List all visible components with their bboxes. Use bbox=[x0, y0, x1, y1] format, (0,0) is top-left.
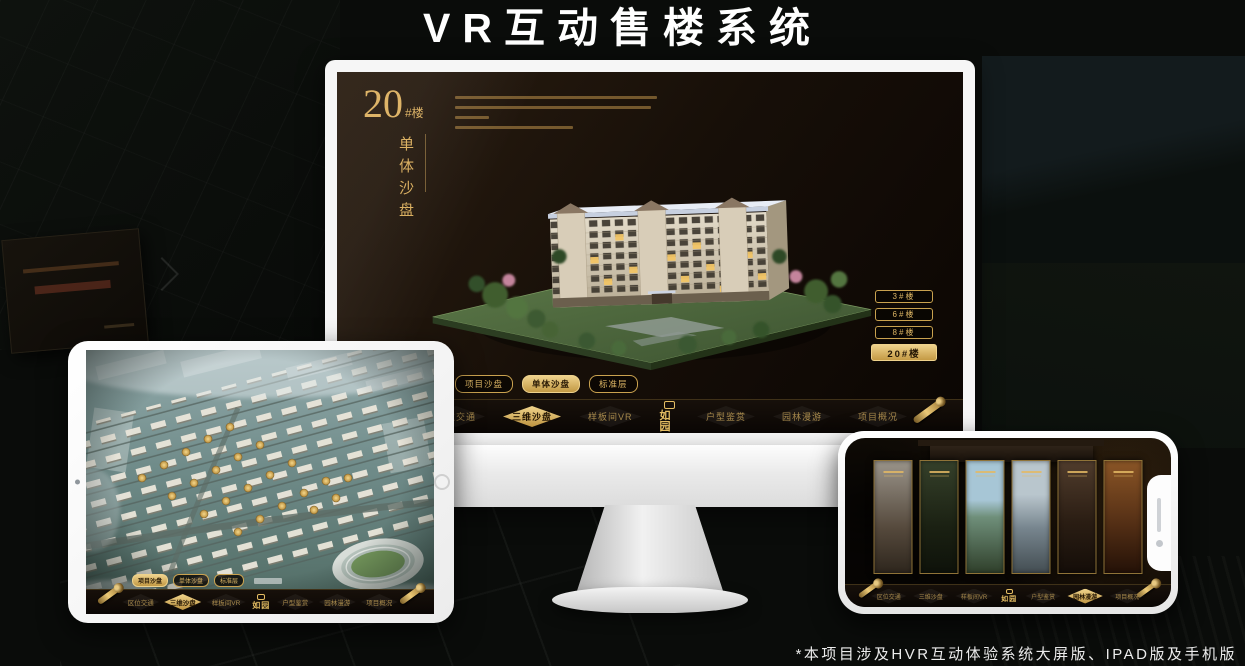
phone-brand-logo: 如园 bbox=[1001, 589, 1017, 603]
monitor-base bbox=[552, 587, 748, 613]
phone-menu-3d-sandbox[interactable]: 三维沙盘 bbox=[915, 590, 947, 603]
phone-menu-project-overview[interactable]: 项目概况 bbox=[1111, 590, 1143, 603]
phone-camera-icon bbox=[1156, 540, 1163, 547]
phone-screen: 区位交通 三维沙盘 样板间VR 如园 户型鉴赏 园林漫游 项目概况 bbox=[845, 438, 1171, 607]
tablet-menu-location-traffic[interactable]: 区位交通 bbox=[124, 595, 158, 609]
menu-item-unit-gallery[interactable]: 户型鉴赏 bbox=[697, 407, 755, 426]
scene-thumbnail-strip bbox=[874, 460, 1143, 574]
floor-button-20[interactable]: 20#楼 bbox=[871, 344, 937, 361]
phone-menu-location-traffic[interactable]: 区位交通 bbox=[873, 590, 905, 603]
menu-item-3d-sandbox[interactable]: 三维沙盘 bbox=[503, 407, 561, 426]
floor-button-group: 3#楼 6#楼 8#楼 20#楼 bbox=[871, 290, 937, 361]
sandbox-tabs: 项目沙盘 单体沙盘 标准层 bbox=[455, 375, 638, 393]
scene-thumbnail-study[interactable] bbox=[1104, 460, 1143, 574]
tablet-menu-project-overview[interactable]: 项目概况 bbox=[362, 595, 396, 609]
block-number-suffix: #楼 bbox=[405, 106, 424, 120]
tablet-home-button bbox=[434, 474, 450, 490]
tab-project-sandbox[interactable]: 项目沙盘 bbox=[455, 375, 513, 393]
award-plaque bbox=[1, 228, 148, 354]
tablet-sandbox-tabs: 项目沙盘 单体沙盘 标准层 bbox=[132, 574, 244, 587]
mini-info-decor bbox=[254, 578, 282, 584]
floor-button-3[interactable]: 3#楼 bbox=[875, 290, 933, 303]
block-number: 20 bbox=[363, 81, 403, 126]
block-title-group: 20#楼 bbox=[363, 84, 424, 124]
scene-thumbnail-landscape[interactable] bbox=[966, 460, 1005, 574]
thumbnail-caption-decor bbox=[1113, 471, 1133, 473]
tab-single-sandbox[interactable]: 单体沙盘 bbox=[522, 375, 580, 393]
brand-logo: 如园 bbox=[660, 401, 679, 433]
thumbnail-caption-decor bbox=[1067, 471, 1087, 473]
floor-button-8[interactable]: 8#楼 bbox=[875, 326, 933, 339]
thumbnail-caption-decor bbox=[975, 471, 995, 473]
phone-notch bbox=[1147, 475, 1171, 571]
tablet-tab-single-sandbox[interactable]: 单体沙盘 bbox=[173, 574, 209, 587]
scene-thumbnail-courtyard[interactable] bbox=[1058, 460, 1097, 574]
phone-menu-garden-walk[interactable]: 园林漫游 bbox=[1069, 590, 1101, 603]
menu-item-showroom-vr[interactable]: 样板间VR bbox=[579, 407, 642, 426]
scene-thumbnail-garden[interactable] bbox=[920, 460, 959, 574]
tablet-menu-garden-walk[interactable]: 园林漫游 bbox=[320, 595, 354, 609]
scene-thumbnail-interior[interactable] bbox=[874, 460, 913, 574]
tablet-menu-showroom-vr[interactable]: 样板间VR bbox=[208, 595, 245, 609]
logo-seal-icon bbox=[257, 594, 265, 600]
tablet-menu-3d-sandbox[interactable]: 三维沙盘 bbox=[166, 595, 200, 609]
tablet-menu-bar: 区位交通 三维沙盘 样板间VR 如园 户型鉴赏 园林漫游 项目概况 bbox=[86, 589, 434, 614]
footnote: *本项目涉及HVR互动体验系统大屏版、IPAD版及手机版 bbox=[796, 643, 1237, 664]
logo-seal-icon bbox=[664, 401, 675, 409]
building-3d-model[interactable] bbox=[415, 128, 887, 394]
phone-menu-unit-gallery[interactable]: 户型鉴赏 bbox=[1027, 590, 1059, 603]
background-photo-right-top bbox=[982, 56, 1245, 263]
phone-speaker-icon bbox=[1157, 498, 1161, 532]
tablet-brand-logo: 如园 bbox=[252, 594, 270, 610]
page-title: VR互动售楼系统 bbox=[0, 0, 1245, 56]
tablet-camera-icon bbox=[75, 480, 80, 485]
scroll-menu-icon[interactable] bbox=[912, 399, 944, 425]
phone-device: 区位交通 三维沙盘 样板间VR 如园 户型鉴赏 园林漫游 项目概况 bbox=[838, 431, 1178, 614]
thumbnail-caption-decor bbox=[929, 471, 949, 473]
scene-thumbnail-building[interactable] bbox=[1012, 460, 1051, 574]
thumbnail-caption-decor bbox=[1021, 471, 1041, 473]
thumbnail-caption-decor bbox=[883, 471, 903, 473]
phone-menu-bar: 区位交通 三维沙盘 样板间VR 如园 户型鉴赏 园林漫游 项目概况 bbox=[845, 584, 1171, 607]
tablet-device: 项目沙盘 单体沙盘 标准层 区位交通 三维沙盘 样板间VR 如园 户型鉴赏 园林… bbox=[68, 341, 454, 623]
tablet-menu-unit-gallery[interactable]: 户型鉴赏 bbox=[278, 595, 312, 609]
tablet-tab-standard-floor[interactable]: 标准层 bbox=[214, 574, 244, 587]
block-subtitle-vertical: 单体沙盘 bbox=[395, 136, 416, 224]
tablet-screen: 项目沙盘 单体沙盘 标准层 区位交通 三维沙盘 样板间VR 如园 户型鉴赏 园林… bbox=[86, 350, 434, 614]
menu-item-project-overview[interactable]: 项目概况 bbox=[849, 407, 907, 426]
floor-button-6[interactable]: 6#楼 bbox=[875, 308, 933, 321]
background-photo-right-bottom bbox=[982, 263, 1245, 448]
poster-root: VR互动售楼系统 20#楼 单体沙盘 bbox=[0, 0, 1245, 666]
menu-item-garden-walk[interactable]: 园林漫游 bbox=[773, 407, 831, 426]
phone-menu-showroom-vr[interactable]: 样板间VR bbox=[957, 590, 991, 603]
logo-seal-icon bbox=[1006, 589, 1013, 594]
tablet-tab-project-sandbox[interactable]: 项目沙盘 bbox=[132, 574, 168, 587]
tab-standard-floor[interactable]: 标准层 bbox=[589, 375, 638, 393]
